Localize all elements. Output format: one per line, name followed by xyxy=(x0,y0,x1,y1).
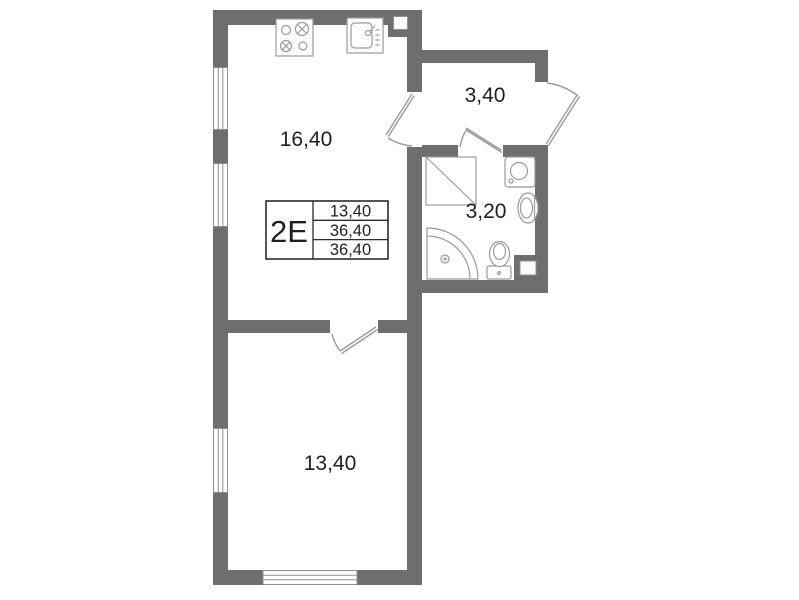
apartment-type-label: 2E xyxy=(270,214,308,249)
kitchen-living-area-label: 16,40 xyxy=(280,128,333,151)
bathroom-area-label: 3,20 xyxy=(466,200,507,223)
bathroom-door-icon xyxy=(460,128,502,153)
wall-segment xyxy=(378,320,407,333)
kitchen-sink-icon xyxy=(347,18,383,53)
duct-notch xyxy=(520,261,536,275)
apartment-info-table: 2E 13,40 36,40 36,40 xyxy=(266,201,388,259)
info-row-living-area: 13,40 xyxy=(330,203,371,221)
wall-segment xyxy=(503,145,548,157)
stove-icon xyxy=(276,19,313,56)
corner-shower-icon xyxy=(427,228,478,279)
wash-basin-icon xyxy=(518,193,538,223)
floor-plan-page: 16,40 3,40 3,20 13,40 2E 13,40 36,40 36,… xyxy=(0,0,799,600)
wall-segment xyxy=(422,50,548,63)
kitchen-door-icon xyxy=(386,94,414,146)
bedroom-area-label: 13,40 xyxy=(304,452,357,475)
shower-box-icon xyxy=(426,157,476,205)
wall-segment xyxy=(213,227,228,428)
washing-machine-icon xyxy=(505,157,535,187)
bedroom-door-icon xyxy=(332,327,378,354)
wall-segment xyxy=(407,147,422,585)
wall-segment xyxy=(535,50,548,82)
wall-segment xyxy=(357,570,422,585)
floor-plan: 16,40 3,40 3,20 13,40 2E 13,40 36,40 36,… xyxy=(0,0,799,600)
window-icon xyxy=(263,571,357,585)
wall-segment xyxy=(407,10,422,92)
window-icon xyxy=(214,429,228,493)
entrance-door-icon xyxy=(546,83,579,146)
wall-segment xyxy=(228,320,330,333)
wall-segment xyxy=(422,145,458,157)
info-row-total-area: 36,40 xyxy=(330,222,371,240)
wall-segment xyxy=(213,570,263,585)
hallway-area-label: 3,40 xyxy=(465,84,506,107)
info-row-overall-area: 36,40 xyxy=(330,241,371,259)
window-icon xyxy=(214,164,228,227)
toilet-icon xyxy=(487,242,511,280)
wall-segment xyxy=(213,130,228,163)
duct-notch xyxy=(394,17,408,30)
window-icon xyxy=(214,68,228,130)
